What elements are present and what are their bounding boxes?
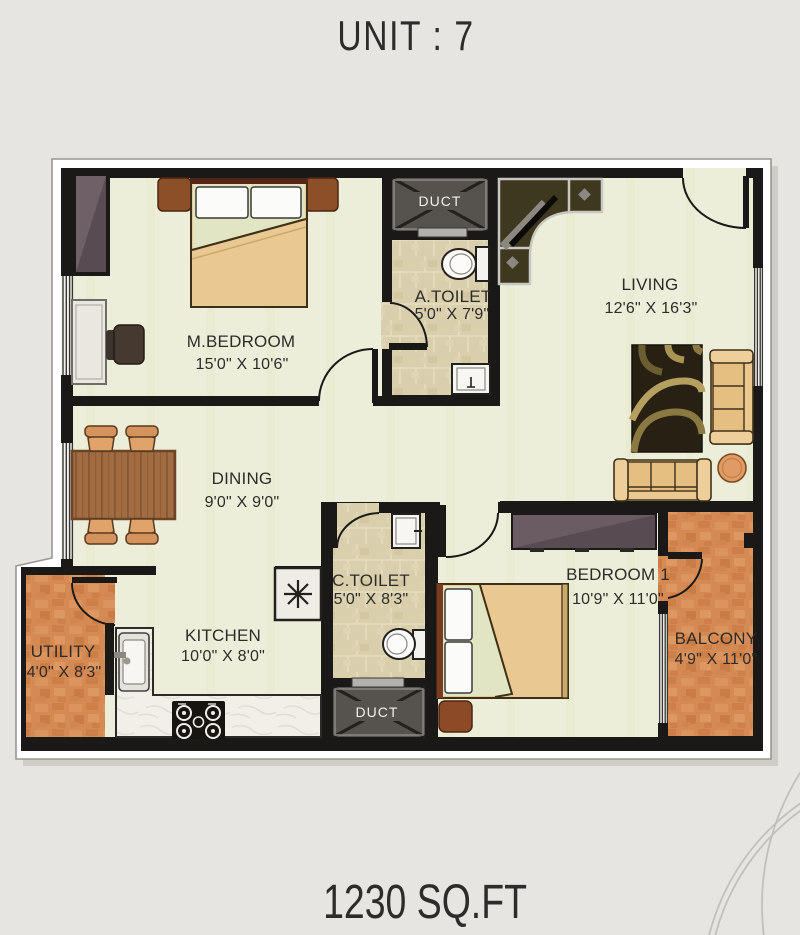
- svg-text:C.TOILET: C.TOILET: [332, 571, 410, 590]
- svg-text:10'9" X 11'0": 10'9" X 11'0": [572, 591, 664, 608]
- svg-text:BALCONY: BALCONY: [675, 629, 758, 648]
- svg-text:DUCT: DUCT: [356, 704, 399, 720]
- svg-text:DUCT: DUCT: [419, 193, 462, 209]
- svg-text:12'6" X 16'3": 12'6" X 16'3": [604, 300, 697, 317]
- svg-text:UNIT : 7: UNIT : 7: [337, 14, 474, 60]
- svg-text:KITCHEN: KITCHEN: [185, 626, 261, 645]
- svg-text:1230 SQ.FT: 1230 SQ.FT: [323, 876, 527, 930]
- svg-text:4'9" X 11'0": 4'9" X 11'0": [675, 651, 758, 668]
- svg-text:BEDROOM 1: BEDROOM 1: [566, 565, 670, 584]
- svg-text:LIVING: LIVING: [622, 275, 679, 294]
- svg-text:UTILITY: UTILITY: [31, 642, 96, 661]
- svg-text:10'0" X 8'0": 10'0" X 8'0": [181, 648, 265, 665]
- svg-text:5'0" X 8'3": 5'0" X 8'3": [334, 591, 409, 608]
- svg-text:15'0" X 10'6": 15'0" X 10'6": [195, 356, 288, 373]
- svg-text:9'0" X 9'0": 9'0" X 9'0": [205, 494, 280, 511]
- svg-text:DINING: DINING: [212, 469, 273, 488]
- svg-text:A.TOILET: A.TOILET: [415, 287, 492, 306]
- svg-text:M.BEDROOM: M.BEDROOM: [187, 332, 296, 351]
- svg-text:4'0" X 8'3": 4'0" X 8'3": [27, 664, 102, 681]
- svg-text:5'0" X 7'9": 5'0" X 7'9": [415, 306, 490, 323]
